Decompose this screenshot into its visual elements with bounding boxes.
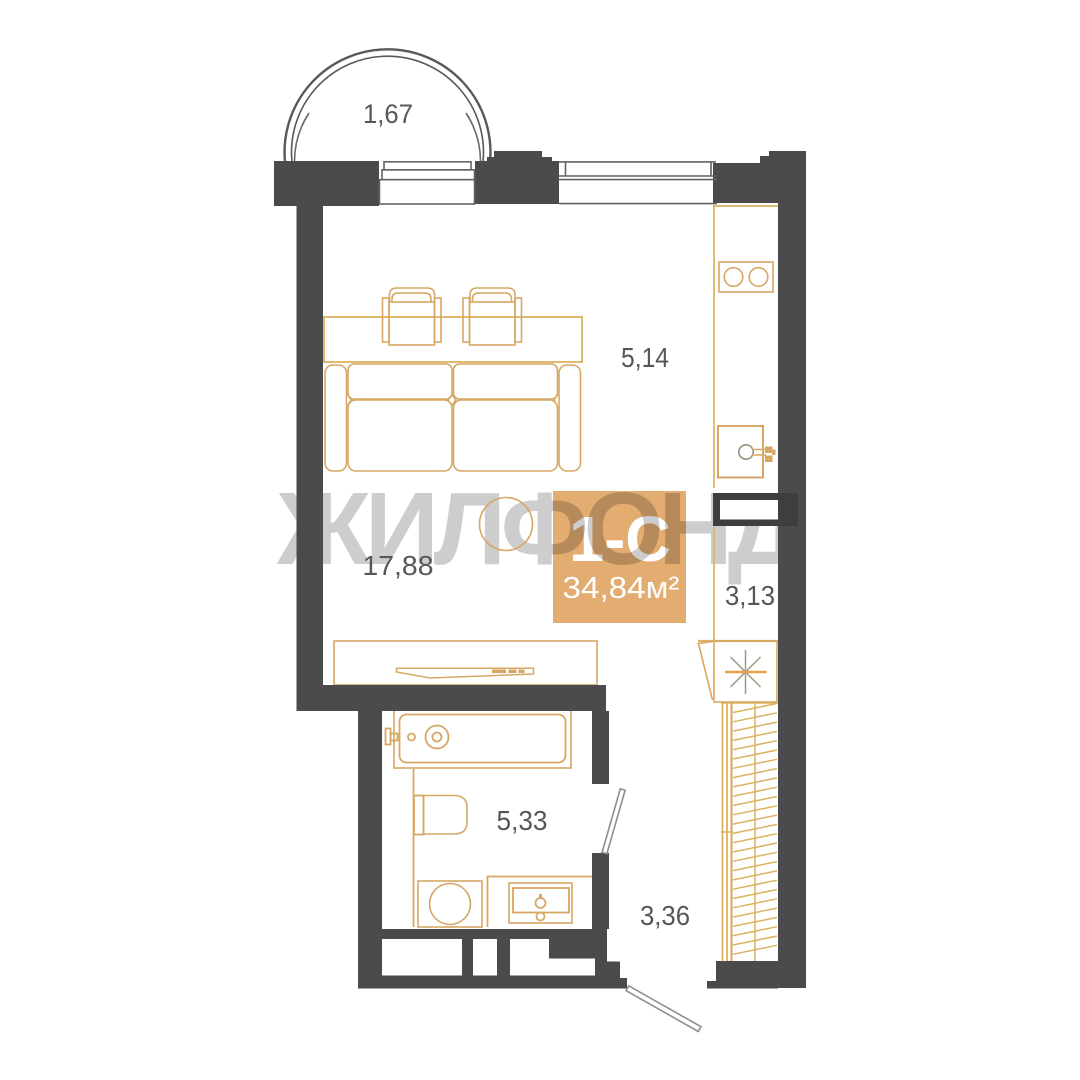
svg-text:1,67: 1,67 [363,99,413,129]
svg-text:5,33: 5,33 [497,805,548,836]
svg-text:3,13: 3,13 [725,580,775,611]
svg-text:3,36: 3,36 [640,900,690,931]
svg-text:ЖИЛФОНД: ЖИЛФОНД [276,471,801,586]
svg-text:17,88: 17,88 [363,550,434,581]
svg-text:5,14: 5,14 [621,342,669,373]
